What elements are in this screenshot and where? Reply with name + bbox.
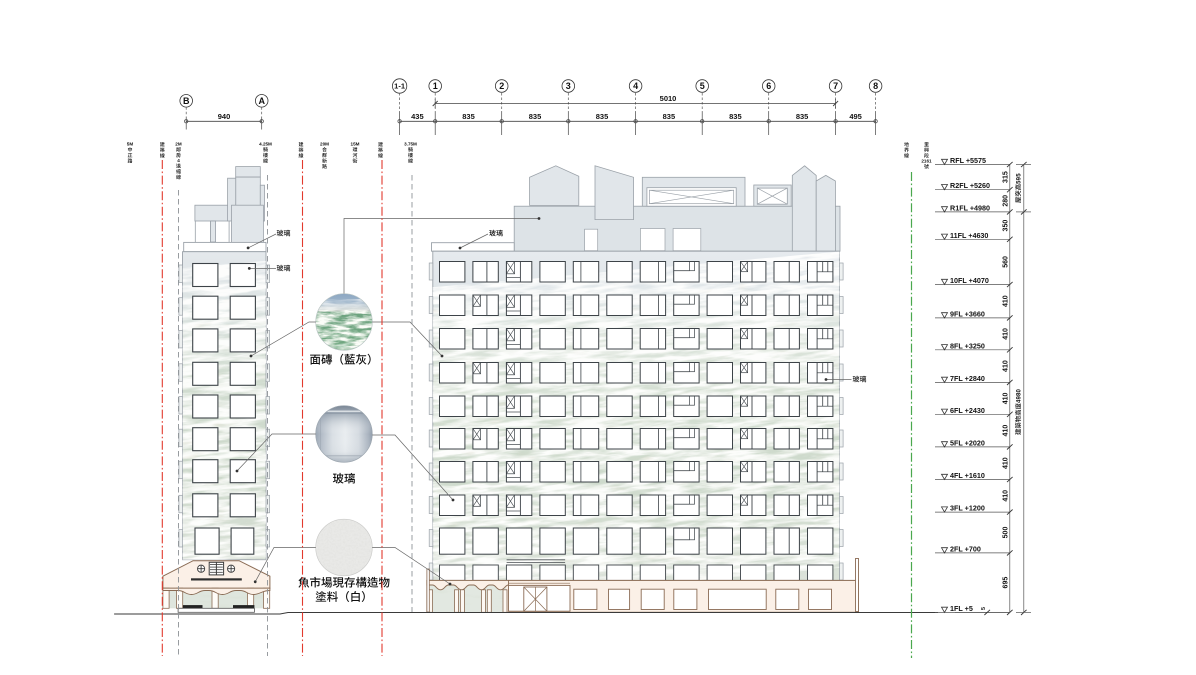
svg-text:835: 835 xyxy=(462,112,475,121)
svg-text:11FL +4630: 11FL +4630 xyxy=(950,231,988,240)
svg-text:410: 410 xyxy=(1003,295,1010,307)
svg-text:5FL +2020: 5FL +2020 xyxy=(950,438,985,447)
svg-text:15M: 15M xyxy=(351,142,360,147)
svg-text:7: 7 xyxy=(833,81,838,91)
svg-text:2161: 2161 xyxy=(921,159,932,164)
svg-text:9FL +3660: 9FL +3660 xyxy=(950,309,985,318)
svg-text:5010: 5010 xyxy=(660,94,677,103)
svg-text:R2FL +5260: R2FL +5260 xyxy=(950,181,990,190)
svg-text:280: 280 xyxy=(1003,195,1010,207)
svg-text:B: B xyxy=(183,96,190,106)
svg-text:1-1: 1-1 xyxy=(394,82,405,91)
svg-text:2: 2 xyxy=(499,81,504,91)
svg-text:410: 410 xyxy=(1003,490,1010,502)
svg-text:410: 410 xyxy=(1003,360,1010,372)
svg-text:4: 4 xyxy=(177,158,180,163)
svg-text:2FL +700: 2FL +700 xyxy=(950,544,981,553)
svg-text:1FL +5: 1FL +5 xyxy=(950,604,973,613)
svg-text:6: 6 xyxy=(766,81,771,91)
svg-text:495: 495 xyxy=(849,112,862,121)
svg-text:20M: 20M xyxy=(320,142,329,147)
svg-text:8FL +3250: 8FL +3250 xyxy=(950,341,985,350)
svg-text:3FL +1200: 3FL +1200 xyxy=(950,504,985,513)
svg-text:315: 315 xyxy=(1003,171,1010,183)
svg-text:695: 695 xyxy=(1003,577,1010,589)
svg-text:835: 835 xyxy=(729,112,742,121)
svg-text:835: 835 xyxy=(529,112,542,121)
svg-text:410: 410 xyxy=(1003,392,1010,404)
svg-text:1: 1 xyxy=(433,81,438,91)
svg-text:940: 940 xyxy=(218,112,231,121)
svg-text:560: 560 xyxy=(1003,256,1010,268)
svg-text:5M: 5M xyxy=(127,142,134,147)
svg-text:10FL +4070: 10FL +4070 xyxy=(950,276,989,285)
svg-text:835: 835 xyxy=(796,112,809,121)
svg-text:835: 835 xyxy=(596,112,609,121)
svg-text:7FL +2840: 7FL +2840 xyxy=(950,374,985,383)
svg-text:4FL +1610: 4FL +1610 xyxy=(950,471,985,480)
svg-text:410: 410 xyxy=(1003,425,1010,437)
svg-text:835: 835 xyxy=(663,112,676,121)
svg-text:350: 350 xyxy=(1003,220,1010,232)
svg-text:3: 3 xyxy=(566,81,571,91)
svg-text:4: 4 xyxy=(633,81,638,91)
svg-text:4.25M: 4.25M xyxy=(259,142,272,147)
svg-text:410: 410 xyxy=(1003,457,1010,469)
svg-text:R1FL +4980: R1FL +4980 xyxy=(950,203,990,212)
svg-text:2M: 2M xyxy=(175,142,182,147)
svg-text:410: 410 xyxy=(1003,328,1010,340)
svg-text:8: 8 xyxy=(873,81,878,91)
svg-text:RFL +5575: RFL +5575 xyxy=(950,156,986,165)
svg-text:A: A xyxy=(258,96,265,106)
svg-text:5: 5 xyxy=(700,81,705,91)
svg-text:500: 500 xyxy=(1003,527,1010,539)
svg-text:3.75M: 3.75M xyxy=(404,142,417,147)
svg-text:6FL +2430: 6FL +2430 xyxy=(950,406,985,415)
svg-text:435: 435 xyxy=(411,112,424,121)
svg-text:5: 5 xyxy=(981,607,987,610)
